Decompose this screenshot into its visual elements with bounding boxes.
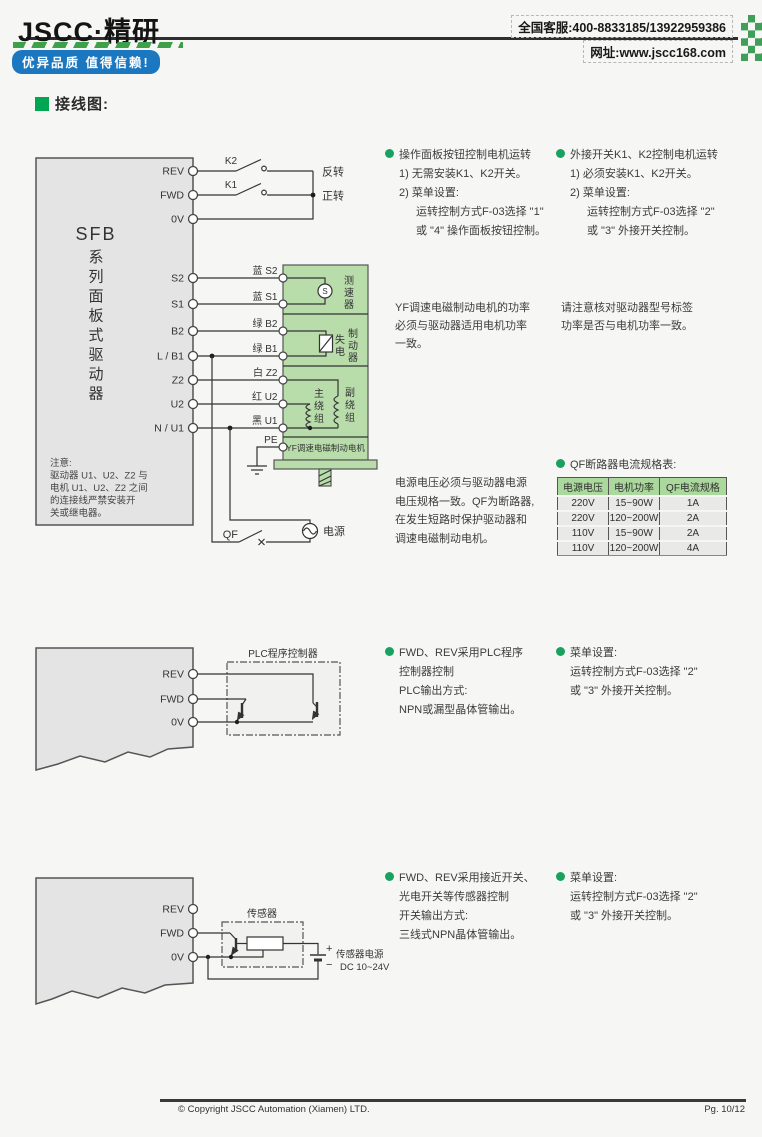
svg-text:制: 制: [348, 327, 358, 340]
bullet-icon: [385, 647, 394, 656]
svg-text:电机 U1、U2、Z2 之间: 电机 U1、U2、Z2 之间: [50, 482, 148, 494]
diagram3-sensor: REV FWD 0V 传感器 + − 传感器电源: [36, 878, 390, 1004]
bullet-icon: [556, 149, 565, 158]
driver-box-torn: [36, 648, 193, 770]
note-plc-control: FWD、REV采用PLC程序 控制器控制 PLC输出方式: NPN或漏型晶体管输…: [385, 644, 523, 720]
svg-text:绕: 绕: [345, 399, 355, 412]
svg-text:0V: 0V: [171, 952, 184, 964]
svg-text:器: 器: [348, 352, 358, 364]
svg-text:U2: U2: [171, 399, 185, 411]
svg-text:测: 测: [344, 274, 354, 287]
svg-text:FWD: FWD: [160, 190, 184, 202]
svg-text:0V: 0V: [171, 717, 184, 729]
table-row: 220V120~200W2A: [558, 511, 727, 526]
svg-text:电: 电: [335, 345, 345, 358]
table-row: 220V15~90W1A: [558, 496, 727, 511]
bullet-icon: [385, 872, 394, 881]
forward-label: 正转: [322, 189, 344, 203]
note-sensor-control: FWD、REV采用接近开关、 光电开关等传感器控制 开关输出方式: 三线式NPN…: [385, 869, 535, 945]
svg-text:动: 动: [348, 340, 358, 352]
col-header: QF电流规格: [660, 478, 727, 497]
note-power-voltage: 电源电压必须与驱动器电源电压规格一致。QF为断路器, 在发生短路时保护驱动器和调…: [395, 474, 534, 548]
manual-page: JSCC·精研 优异品质 值得信赖! 全国客服:400-8833185/1392…: [0, 0, 762, 1137]
svg-text:0V: 0V: [171, 214, 184, 226]
power-label: 电源: [323, 524, 345, 538]
svg-text:B2: B2: [171, 326, 184, 338]
diagram2-plc: REV FWD 0V PLC程序控制器: [36, 647, 340, 770]
svg-text:组: 组: [314, 412, 324, 425]
driver-name: SFB: [75, 224, 116, 244]
motor-name: YF调速电磁制动电机: [286, 443, 365, 453]
motor-box: S 测 速 器 失 电 制 动 器 主 绕 组: [274, 265, 377, 486]
svg-text:Z2: Z2: [172, 375, 184, 387]
svg-text:列: 列: [88, 269, 103, 286]
note-external-switch: 外接开关K1、K2控制电机运转 1) 必须安装K1、K2开关。 2) 菜单设置:…: [556, 146, 718, 241]
svg-text:REV: REV: [162, 669, 184, 681]
qf-current-table: 电源电压 电机功率 QF电流规格 220V15~90W1A 220V120~20…: [557, 477, 727, 556]
reverse-label: 反转: [322, 165, 344, 179]
svg-text:蓝 S1: 蓝 S1: [252, 291, 277, 303]
svg-text:REV: REV: [162, 904, 184, 916]
svg-text:器: 器: [88, 386, 103, 403]
qf-label: QF: [223, 529, 239, 541]
diagram1-main-wiring: SFB 系 列 面 板 式 驱 动 器 注意: 驱动器 U1、U2、Z2 与 电…: [36, 156, 377, 545]
svg-text:式: 式: [88, 327, 103, 344]
sensor-box-label: 传感器: [247, 907, 277, 920]
psu-label-2: DC 10~24V: [340, 962, 390, 973]
svg-text:绿 B2: 绿 B2: [252, 317, 277, 330]
table-row: 110V15~90W2A: [558, 526, 727, 541]
svg-text:动: 动: [88, 366, 103, 383]
svg-text:FWD: FWD: [160, 928, 184, 940]
footer-rule: [160, 1099, 746, 1102]
note-sensor-menu: 菜单设置: 运转控制方式F-03选择 "2" 或 "3" 外接开关控制。: [556, 869, 698, 926]
pe-label: PE: [264, 435, 278, 446]
col-header: 电源电压: [558, 478, 609, 497]
svg-text:驱: 驱: [88, 347, 103, 364]
svg-text:副: 副: [345, 387, 355, 399]
k-switch-circuit: K2 K1 反转 正转: [198, 156, 345, 219]
battery-minus: −: [326, 959, 332, 971]
svg-text:速: 速: [344, 287, 354, 299]
svg-text:驱动器 U1、U2、Z2 与: 驱动器 U1、U2、Z2 与: [50, 471, 148, 482]
footer-copyright: © Copyright JSCC Automation (Xiamen) LTD…: [178, 1104, 370, 1115]
svg-text:L / B1: L / B1: [157, 351, 184, 363]
col-header: 电机功率: [609, 478, 660, 497]
svg-text:板: 板: [88, 307, 103, 325]
svg-text:主: 主: [314, 388, 324, 400]
note-check-label: 请注意核对驱动器型号标签功率是否与电机功率一致。: [561, 299, 693, 335]
svg-text:S1: S1: [171, 299, 184, 311]
svg-text:失: 失: [335, 333, 345, 346]
bullet-icon: [385, 149, 394, 158]
note-motor-power: YF调速电磁制动电机的功率必须与驱动器适用电机功率一致。: [395, 299, 530, 353]
svg-text:组: 组: [345, 411, 355, 424]
svg-text:注意:: 注意:: [50, 457, 72, 469]
driver-box-torn: [36, 878, 193, 1004]
bullet-icon: [556, 872, 565, 881]
svg-text:白 Z2: 白 Z2: [253, 366, 278, 379]
svg-text:关或继电器。: 关或继电器。: [50, 507, 107, 519]
table-row: 110V120~200W4A: [558, 541, 727, 556]
psu-label-1: 传感器电源: [336, 949, 384, 961]
tach-s: S: [322, 287, 327, 296]
svg-text:REV: REV: [162, 166, 184, 178]
svg-text:N / U1: N / U1: [154, 423, 184, 435]
svg-text:FWD: FWD: [160, 694, 184, 706]
svg-text:S2: S2: [171, 273, 184, 285]
svg-text:面: 面: [88, 288, 103, 305]
note-plc-menu: 菜单设置: 运转控制方式F-03选择 "2" 或 "3" 外接开关控制。: [556, 644, 698, 701]
footer-page-number: Pg. 10/12: [704, 1104, 745, 1115]
plc-box-label: PLC程序控制器: [248, 647, 317, 660]
k2-label: K2: [225, 156, 238, 167]
svg-text:系: 系: [88, 249, 103, 266]
svg-text:蓝 S2: 蓝 S2: [252, 265, 277, 277]
svg-text:器: 器: [344, 299, 354, 311]
svg-text:绿 B1: 绿 B1: [252, 342, 277, 355]
bullet-icon: [556, 459, 565, 468]
note-panel-control: 操作面板按钮控制电机运转 1) 无需安装K1、K2开关。 2) 菜单设置: 运转…: [385, 146, 546, 241]
svg-text:绕: 绕: [314, 400, 324, 413]
battery-plus: +: [326, 943, 332, 955]
svg-text:红 U2: 红 U2: [252, 390, 278, 403]
svg-text:黑 U1: 黑 U1: [252, 415, 278, 427]
k1-label: K1: [225, 180, 238, 191]
svg-text:的连接线严禁安装开: 的连接线严禁安装开: [50, 495, 136, 507]
qf-table-title: QF断路器电流规格表:: [556, 456, 676, 475]
bullet-icon: [556, 647, 565, 656]
